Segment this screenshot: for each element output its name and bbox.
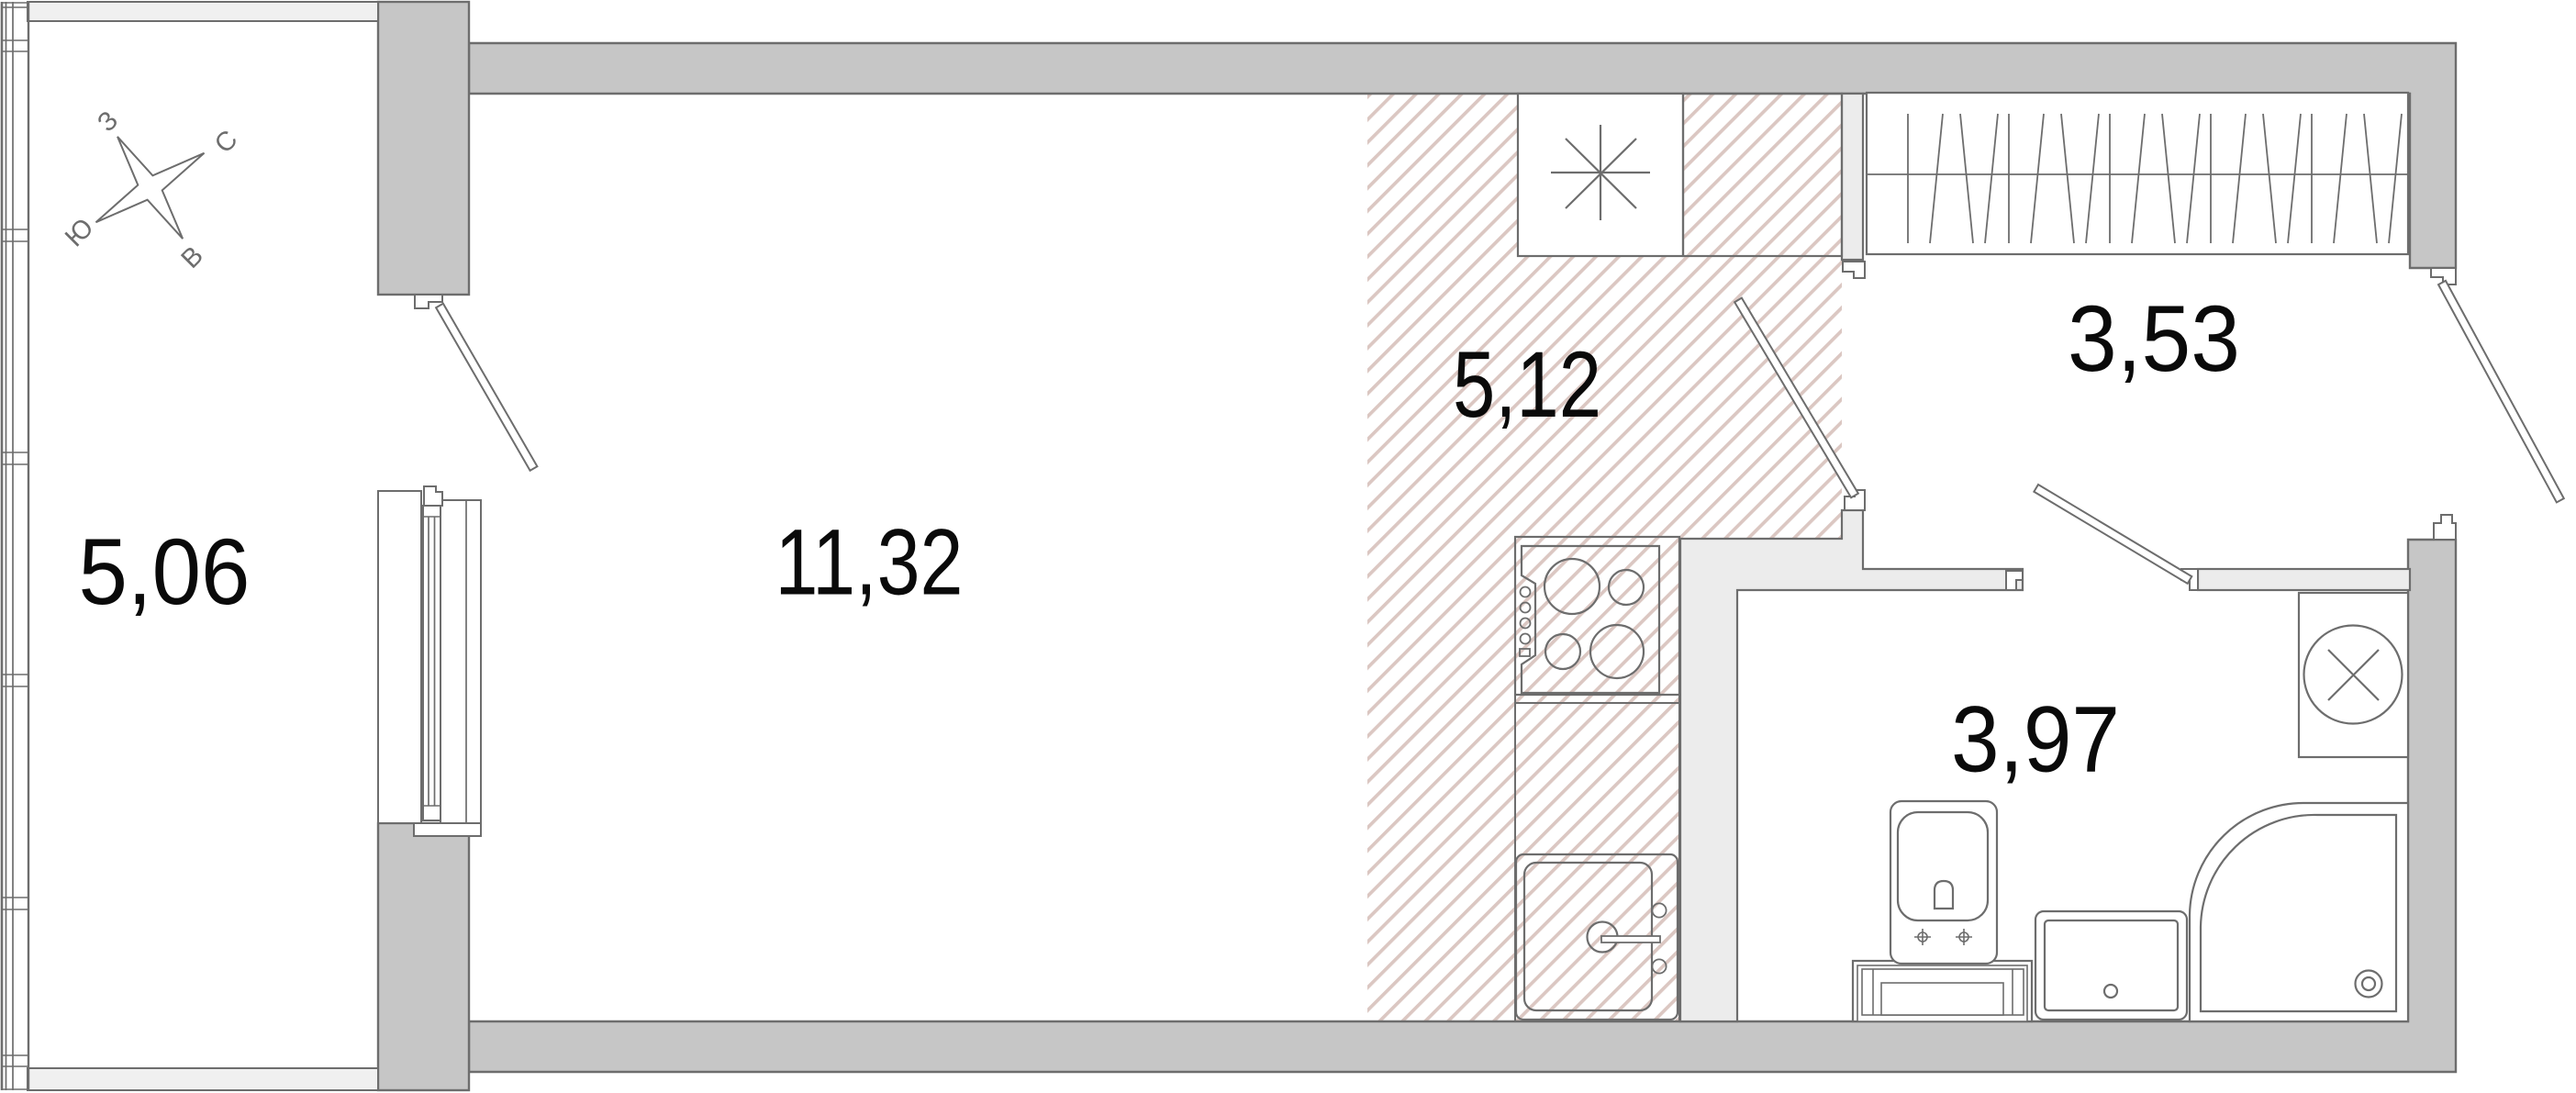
svg-text:11,32: 11,32 — [775, 510, 964, 615]
svg-text:3,97: 3,97 — [1951, 687, 2120, 792]
svg-text:5,12: 5,12 — [1453, 332, 1601, 437]
svg-text:5,06: 5,06 — [79, 519, 251, 624]
svg-text:3,53: 3,53 — [2068, 286, 2240, 391]
